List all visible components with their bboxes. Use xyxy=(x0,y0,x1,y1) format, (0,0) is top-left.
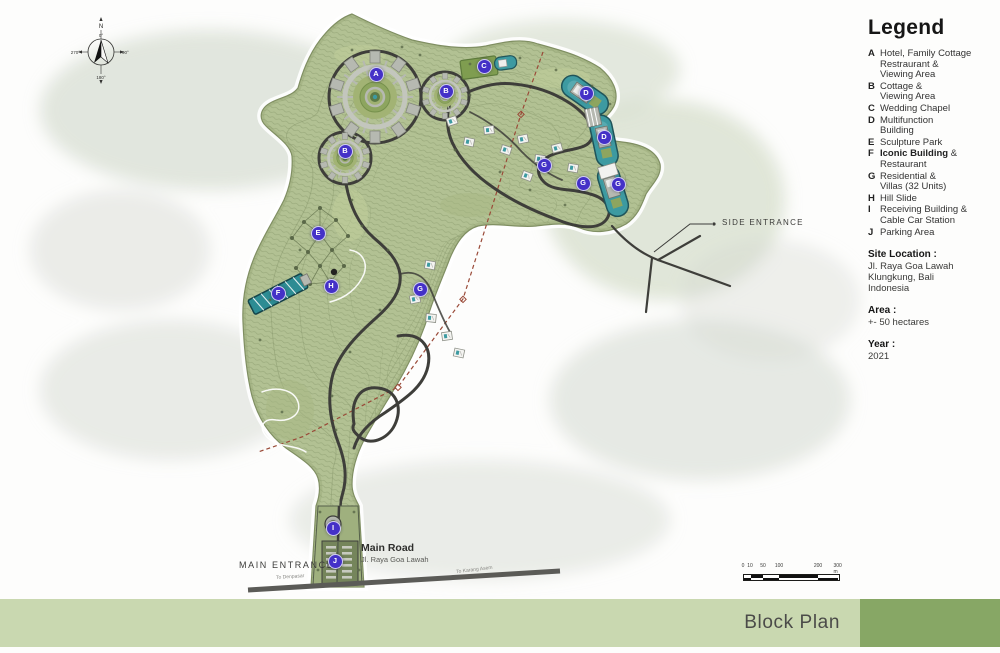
compass-180-label: 180° xyxy=(96,75,106,80)
legend-item-b: BCottage & Viewing Area xyxy=(868,82,998,103)
legend-items: AHotel, Family Cottage Restraurant & Vie… xyxy=(868,49,998,238)
site-location-label: Site Location : xyxy=(868,249,998,261)
year-block: Year : 2021 xyxy=(868,339,998,362)
legend-panel: Legend AHotel, Family Cottage Restrauran… xyxy=(868,16,998,362)
legend-item-a: AHotel, Family Cottage Restraurant & Vie… xyxy=(868,49,998,81)
map-marker-a: A xyxy=(369,67,384,82)
site-location-value: Jl. Raya Goa Lawah Klungkung, Bali Indon… xyxy=(868,261,998,294)
side-entrance-label: SIDE ENTRANCE xyxy=(722,218,804,227)
legend-item-i: IReceiving Building & Cable Car Station xyxy=(868,205,998,226)
legend-item-j: JParking Area xyxy=(868,228,998,239)
compass-270-label: 270° xyxy=(71,50,81,55)
main-entrance-label: MAIN ENTRANCE xyxy=(239,560,334,570)
main-road-subtitle: Jl. Raya Goa Lawah xyxy=(361,555,429,564)
map-marker-g: G xyxy=(537,158,552,173)
legend-title: Legend xyxy=(868,16,998,40)
scalebar-segment xyxy=(744,578,751,581)
map-marker-c: C xyxy=(477,59,492,74)
scalebar-segment xyxy=(763,578,779,581)
map-marker-g: G xyxy=(576,176,591,191)
legend-item-d: DMultifunction Building xyxy=(868,116,998,137)
scalebar-segment xyxy=(779,575,818,578)
map-marker-i: I xyxy=(326,521,341,536)
map-marker-d: D xyxy=(597,130,612,145)
main-road-title: Main Road xyxy=(361,542,414,554)
site-location-block: Site Location : Jl. Raya Goa Lawah Klung… xyxy=(868,249,998,294)
footer-accent-block xyxy=(860,599,1000,647)
scalebar-tick: 0 xyxy=(742,563,745,569)
scalebar-segment xyxy=(751,575,763,578)
legend-item-f: FIconic Building & Restaurant xyxy=(868,149,998,170)
map-marker-b: B xyxy=(338,144,353,159)
compass-90-label: 90° xyxy=(122,50,129,55)
compass-n-label: N xyxy=(99,24,103,30)
map-marker-j: J xyxy=(328,554,343,569)
legend-item-h: HHill Slide xyxy=(868,194,998,205)
legend-item-e: ESculpture Park xyxy=(868,138,998,149)
entrance-parcel xyxy=(313,506,362,585)
legend-item-c: CWedding Chapel xyxy=(868,104,998,115)
site-plan-drawing: N 0° 270° 90° 180° xyxy=(0,0,1000,653)
year-label: Year : xyxy=(868,339,998,351)
scalebar-segment xyxy=(818,578,838,581)
map-marker-h: H xyxy=(324,279,339,294)
page-title: Block Plan xyxy=(744,599,840,647)
scalebar-tick: 100 xyxy=(775,563,783,569)
map-canvas: N 0° 270° 90° 180° SIDE ENTRANCE MAIN EN… xyxy=(0,0,1000,653)
scalebar-tick: 50 xyxy=(760,563,766,569)
map-marker-g: G xyxy=(413,282,428,297)
scalebar-tick: 200 xyxy=(814,563,822,569)
area-value: +- 50 hectares xyxy=(868,317,998,328)
map-marker-f: F xyxy=(271,286,286,301)
map-marker-g: G xyxy=(611,177,626,192)
area-block: Area : +- 50 hectares xyxy=(868,305,998,328)
footer-bar xyxy=(0,599,1000,647)
year-value: 2021 xyxy=(868,351,998,362)
map-marker-d: D xyxy=(579,86,594,101)
compass-0-label: 0° xyxy=(99,33,104,38)
map-marker-b: B xyxy=(439,84,454,99)
map-marker-e: E xyxy=(311,226,326,241)
area-label: Area : xyxy=(868,305,998,317)
legend-item-g: GResidential & Villas (32 Units) xyxy=(868,172,998,193)
scale-bar: 01050100200300 m xyxy=(738,563,850,585)
scalebar-tick: 10 xyxy=(747,563,753,569)
